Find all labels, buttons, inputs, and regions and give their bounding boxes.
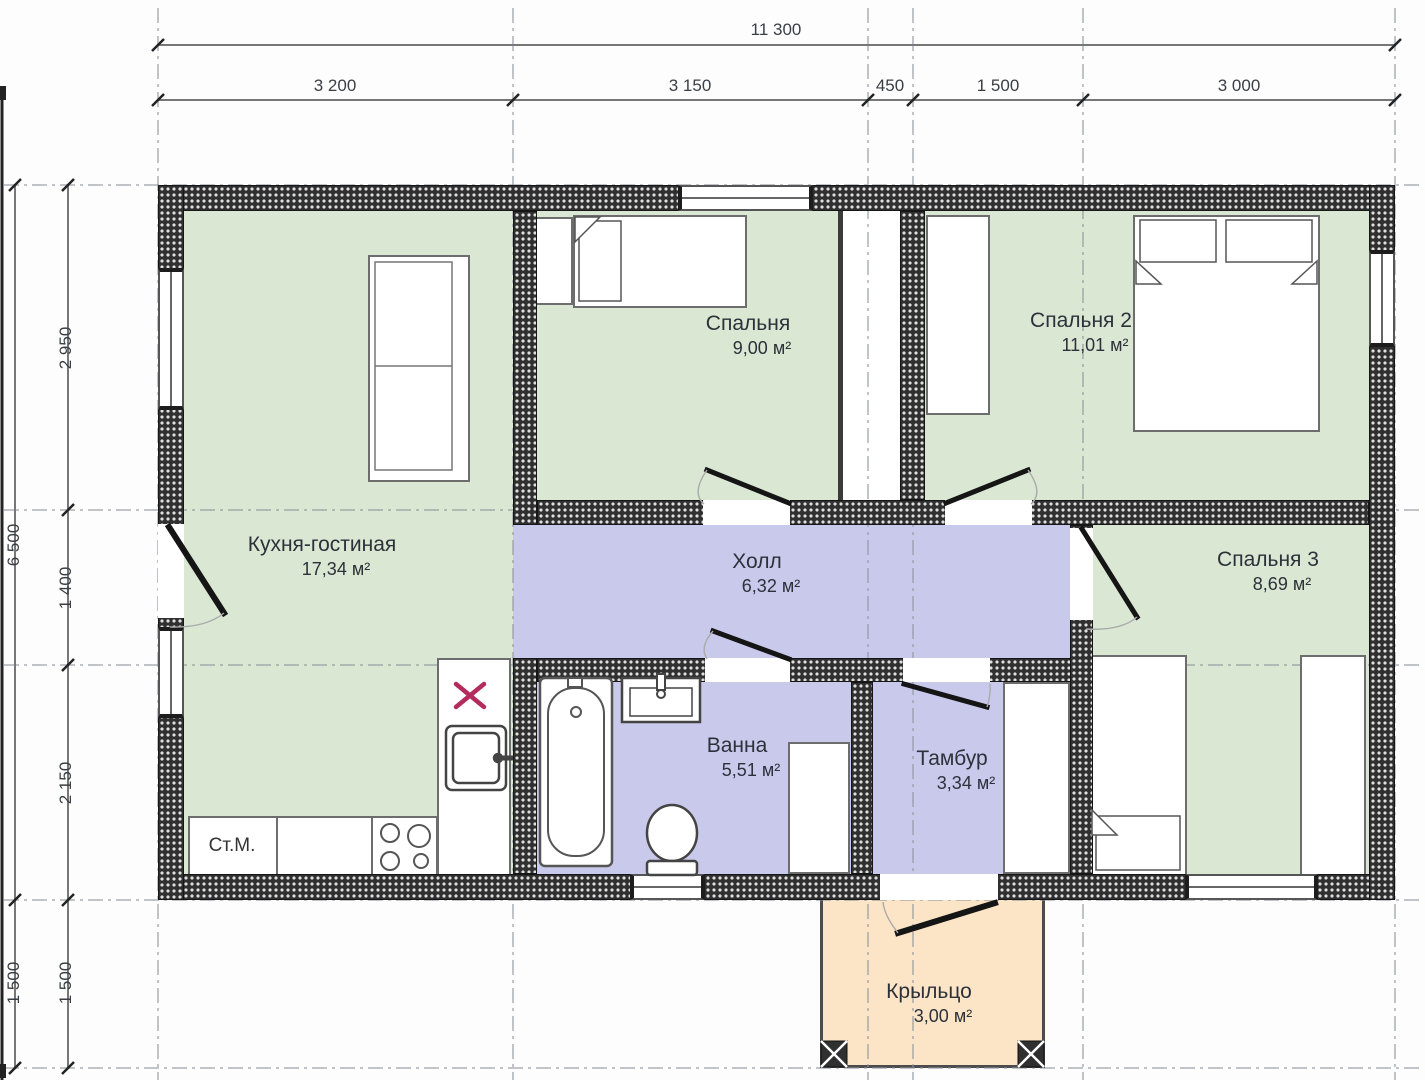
nightstand (533, 217, 573, 305)
doorway-bedroom2 (945, 500, 1032, 525)
dim-top-segment: 3 150 (669, 76, 712, 96)
room-label-bedroom3: Спальня 3 8,69 м² (1217, 547, 1319, 596)
wardrobe-bedroom3 (1300, 655, 1366, 876)
room-label-bedroom2: Спальня 2 11,01 м² (1030, 308, 1132, 357)
window-bedroom3-bottom (1185, 874, 1318, 900)
room-name: Спальня 2 (1030, 308, 1132, 334)
room-label-kitchen: Кухня-гостиная 17,34 м² (248, 532, 397, 581)
dim-top-total: 11 300 (751, 20, 802, 40)
dim-top-segment: 3 000 (1218, 76, 1261, 96)
room-area: 5,51 м² (721, 759, 782, 782)
wall-bedroom1-right-thin (838, 211, 843, 500)
doorway-tambur (903, 658, 990, 682)
doorway-bedroom1 (703, 500, 790, 525)
room-label-bath: Ванна 5,51 м² (707, 733, 768, 782)
shaft-niche (842, 211, 900, 500)
washing-machine-label: Ст.М. (209, 835, 256, 857)
room-name: Холл (728, 549, 786, 575)
room-area: 8,69 м² (1231, 573, 1333, 596)
dim-left-inner: 2 950 (56, 327, 76, 370)
room-area: 3,00 м² (900, 1005, 986, 1028)
dim-left-outer: 1 500 (4, 962, 24, 1005)
wardrobe-bedroom2 (926, 215, 990, 415)
room-label-tambur: Тамбур 3,34 м² (916, 746, 987, 795)
dim-left-inner: 1 500 (56, 962, 76, 1005)
room-label-bedroom1: Спальня 9,00 м² (706, 311, 790, 360)
window-bedroom1-top (678, 185, 813, 211)
room-name: Ванна (707, 733, 768, 759)
doorway-bath (705, 658, 790, 682)
wall-bath-tambur (851, 682, 873, 874)
grid-axis-vertical (512, 8, 514, 1080)
wall-bedroom2-left (900, 211, 925, 500)
room-area: 17,34 м² (262, 558, 411, 581)
window-kitchen-left-upper (158, 268, 184, 410)
room-name: Кухня-гостиная (248, 532, 397, 558)
room-name: Спальня (706, 311, 790, 337)
room-area: 9,00 м² (720, 337, 804, 360)
bed-double-bedroom2 (1133, 215, 1320, 432)
room-name: Тамбур (916, 746, 987, 772)
doorway-terrace (158, 524, 184, 618)
room-area: 3,34 м² (930, 772, 1001, 795)
floor-plan: 11 300 3 200 3 150 450 1 500 3 000 6 500… (0, 0, 1425, 1080)
room-label-hall: Холл 6,32 м² (728, 549, 786, 598)
stove (371, 816, 438, 876)
dim-top-segment: 3 200 (314, 76, 357, 96)
window-kitchen-left-lower (158, 627, 184, 718)
room-label-porch: Крыльцо 3,00 м² (886, 979, 972, 1028)
room-name: Крыльцо (886, 979, 972, 1005)
grid-axis-vertical (867, 8, 869, 1080)
kitchen-counter-column (437, 658, 511, 876)
dim-left-inner: 1 400 (56, 567, 76, 610)
doorway-entrance (880, 874, 998, 900)
wall-kitchen-bedroom1 (513, 211, 537, 525)
closet-tambur (1003, 682, 1070, 874)
dim-left-outer: 6 500 (4, 524, 24, 567)
room-area: 6,32 м² (742, 575, 800, 598)
window-bedroom2-right (1369, 250, 1395, 347)
grid-axis-vertical (912, 8, 914, 1080)
dim-top-segment: 1 500 (977, 76, 1020, 96)
window-bath-bottom (630, 874, 705, 900)
bed-single-bedroom1 (573, 215, 747, 308)
sofa (368, 255, 470, 482)
bed-single-bedroom3 (1090, 655, 1187, 876)
room-name: Спальня 3 (1217, 547, 1319, 573)
doorway-bedroom3 (1070, 528, 1093, 620)
bath-cabinet (788, 742, 850, 874)
wall-hall-bottom (537, 658, 1093, 682)
grid-axis-horizontal (4, 1067, 1421, 1069)
room-area: 11,01 м² (1044, 334, 1146, 357)
dim-top-segment: 450 (876, 76, 904, 96)
dim-left-inner: 2 150 (56, 762, 76, 805)
wall-kitchen-bath (513, 658, 537, 874)
